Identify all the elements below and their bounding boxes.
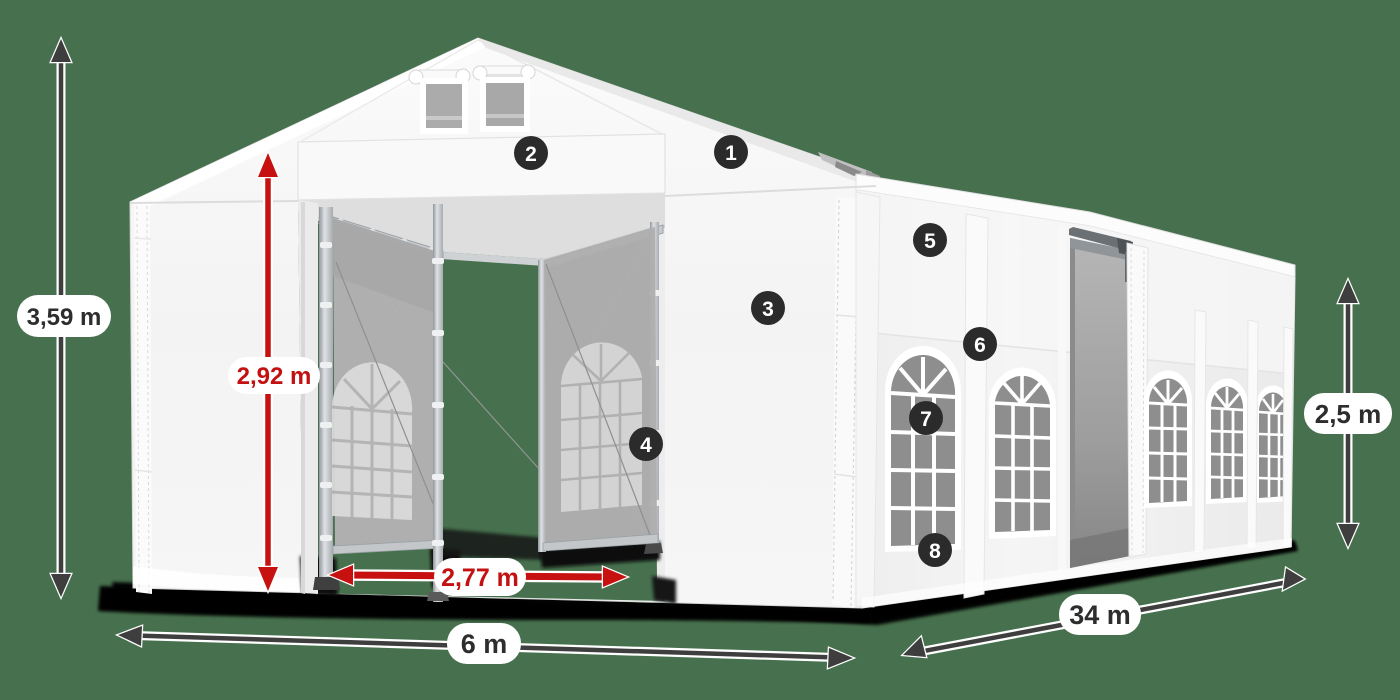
svg-text:2: 2 xyxy=(525,143,537,166)
svg-text:5: 5 xyxy=(924,230,936,253)
svg-text:3,59 m: 3,59 m xyxy=(27,304,102,331)
svg-text:6: 6 xyxy=(974,334,986,357)
svg-text:6 m: 6 m xyxy=(461,629,508,659)
svg-text:1: 1 xyxy=(725,142,737,165)
svg-text:2,92 m: 2,92 m xyxy=(237,363,312,390)
svg-text:2,5 m: 2,5 m xyxy=(1315,399,1382,429)
svg-text:2,77 m: 2,77 m xyxy=(441,564,519,592)
svg-text:34 m: 34 m xyxy=(1069,600,1131,630)
svg-text:7: 7 xyxy=(920,408,932,431)
svg-text:8: 8 xyxy=(929,540,941,563)
svg-text:4: 4 xyxy=(640,434,652,457)
svg-text:3: 3 xyxy=(762,298,774,321)
